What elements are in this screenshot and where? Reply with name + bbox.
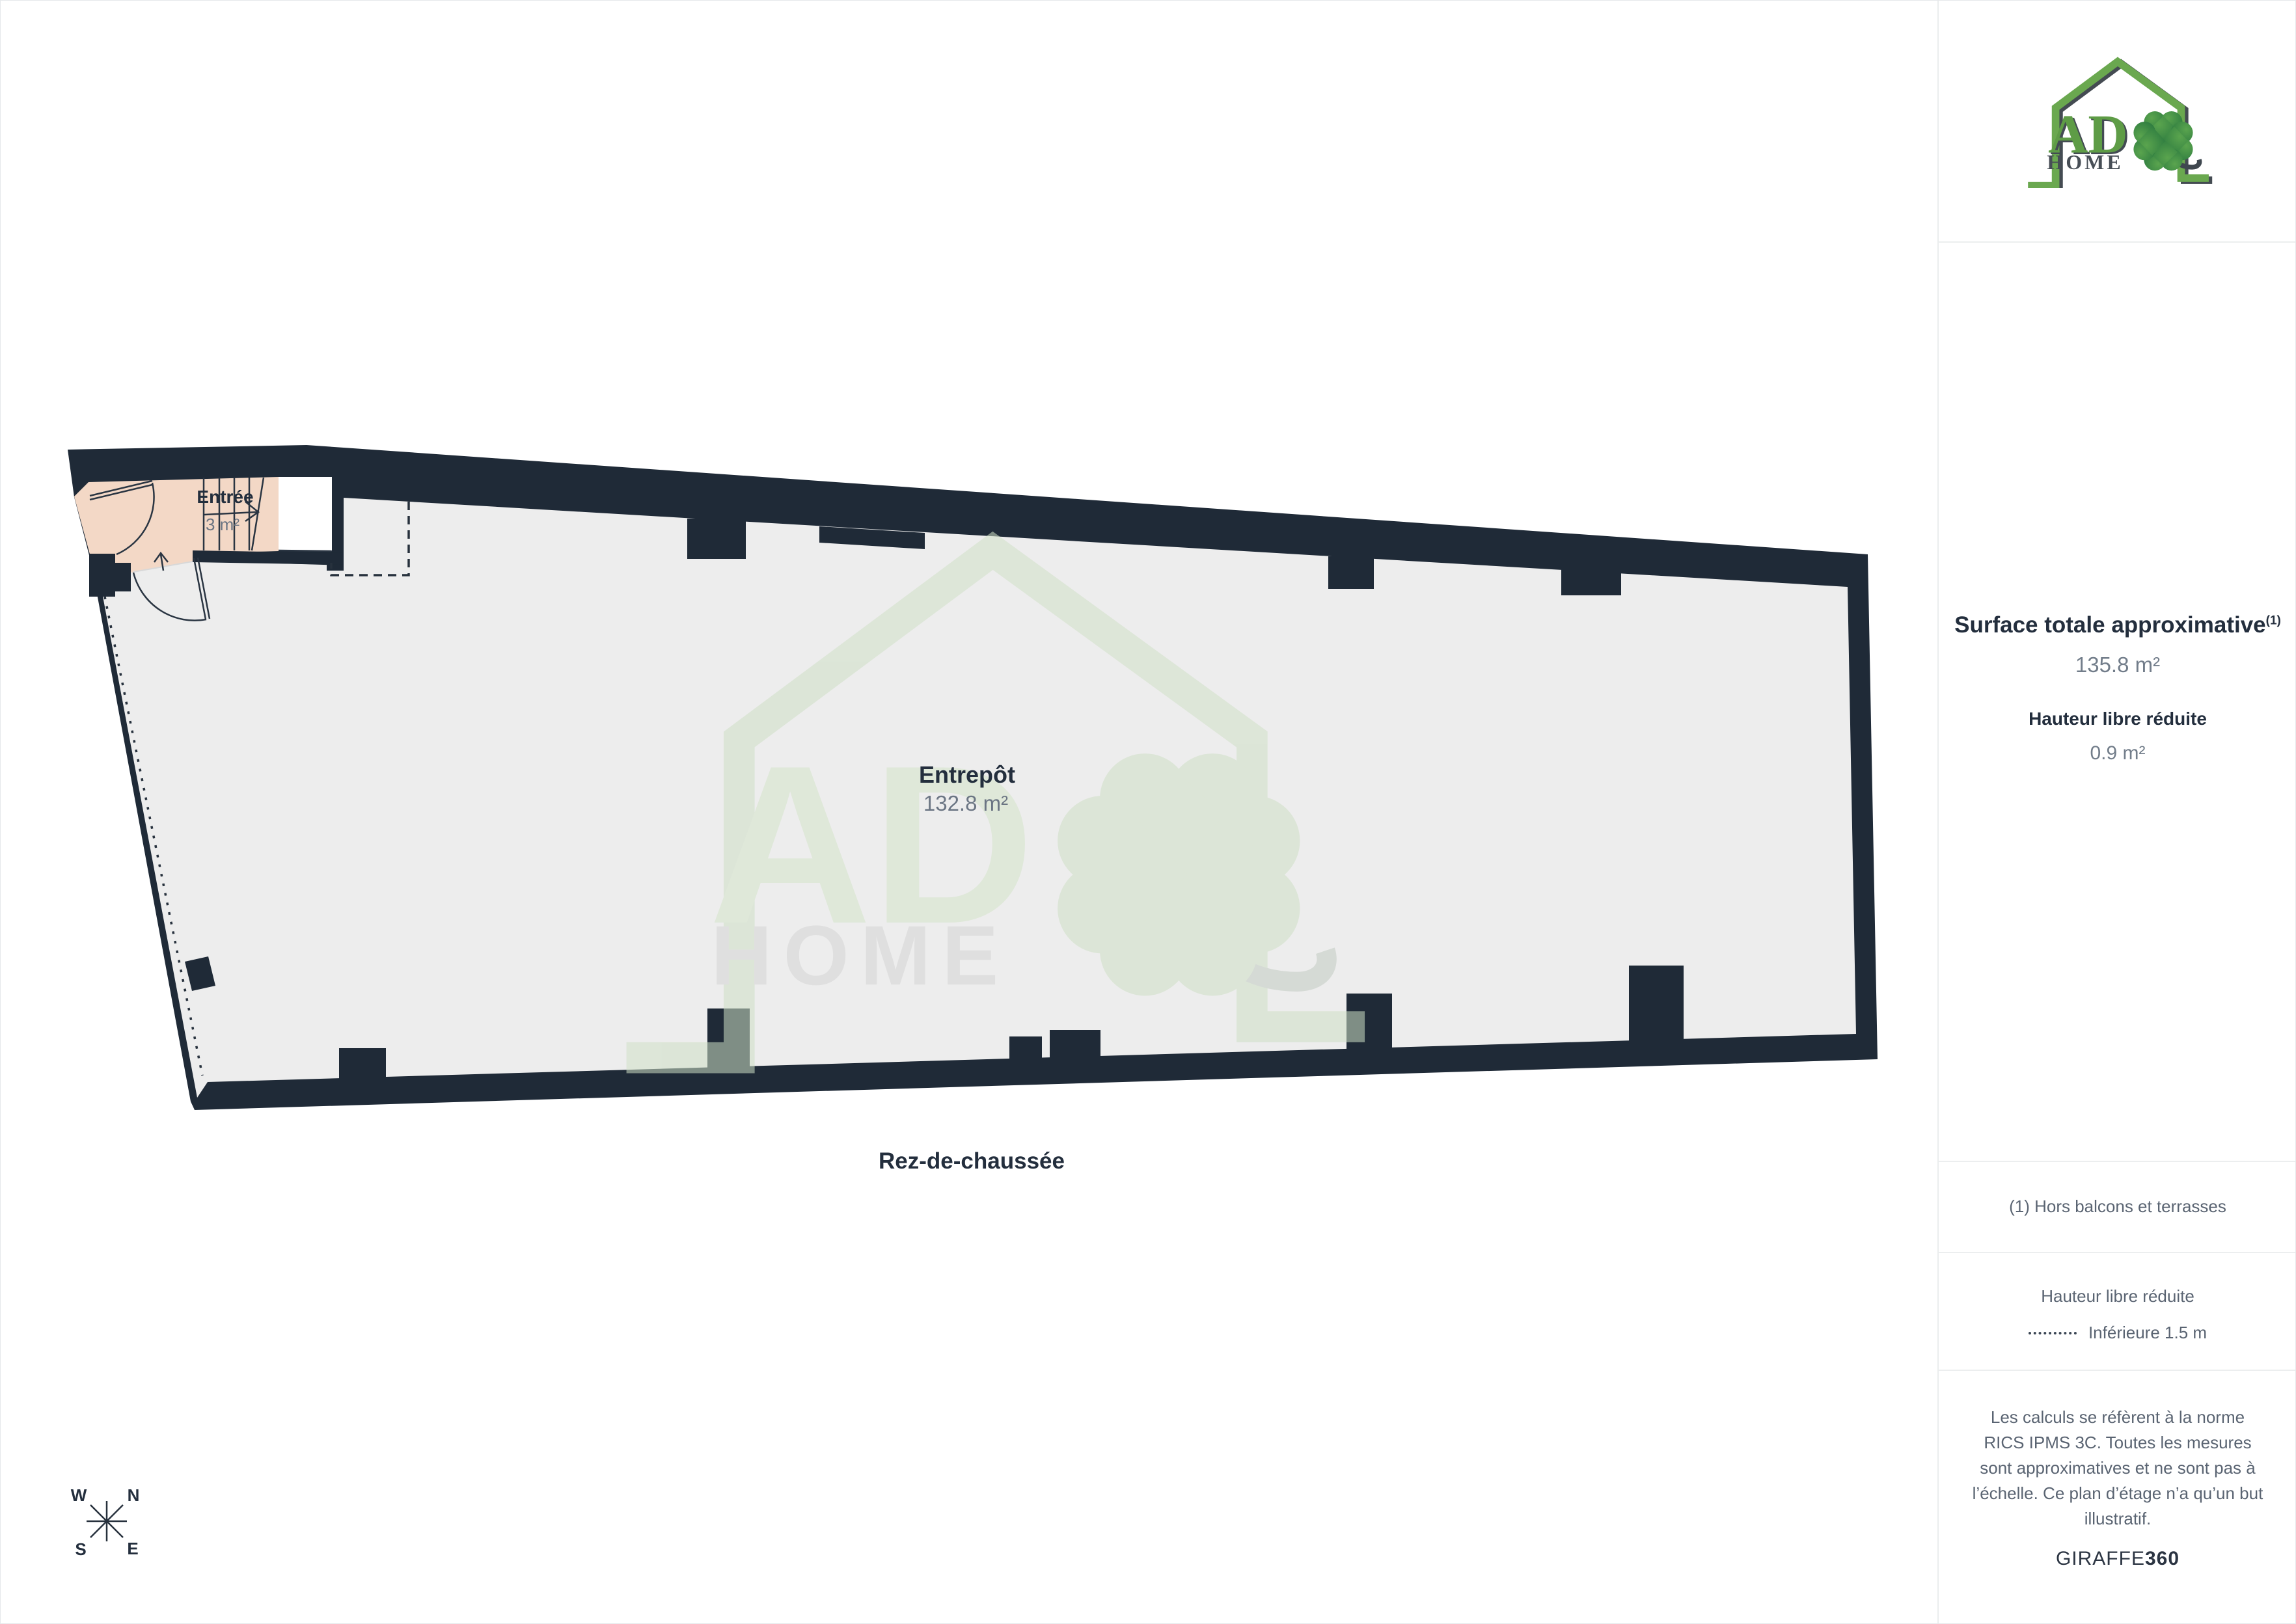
floorplan-page: AD HOME Entrée 3 m² Entrepôt 132.8 m² Re… xyxy=(0,0,2296,1624)
info-sidebar: AD AD HOME xyxy=(1937,1,2296,1624)
logo-clover-icon xyxy=(2133,111,2199,170)
room-label-entree: Entrée xyxy=(197,487,253,507)
brand-logo: AD AD HOME xyxy=(2014,57,2221,191)
reduced-height-title: Hauteur libre réduite xyxy=(1939,709,2296,729)
legend-title: Hauteur libre réduite xyxy=(1939,1286,2296,1306)
surface-total-title-text: Surface totale approximative xyxy=(1954,612,2266,638)
compass-star xyxy=(87,1501,127,1541)
room-label-entrepot: Entrepôt xyxy=(919,761,1015,788)
separator xyxy=(1939,1252,2296,1253)
compass-s: S xyxy=(75,1539,86,1559)
giraffe-brand-regular: GIRAFFE xyxy=(2056,1548,2145,1569)
room-area-entree: 3 m² xyxy=(206,515,239,534)
watermark-home: HOME xyxy=(711,908,1010,1003)
giraffe360-brand: GIRAFFE360 xyxy=(1939,1548,2296,1570)
reduced-height-dash-sample xyxy=(2029,1332,2077,1334)
floorplan-drawing: AD HOME Entrée 3 m² Entrepôt 132.8 m² Re… xyxy=(1,1,1939,1624)
compass-w: W xyxy=(71,1485,87,1505)
separator xyxy=(1939,1161,2296,1162)
compass-e: E xyxy=(127,1539,138,1558)
surface-total-value: 135.8 m² xyxy=(1939,653,2296,677)
giraffe-brand-bold: 360 xyxy=(2145,1548,2180,1569)
legend-item-label: Inférieure 1.5 m xyxy=(2088,1323,2207,1343)
separator xyxy=(1939,1370,2296,1371)
compass-n: N xyxy=(128,1485,140,1505)
alcove xyxy=(279,477,332,551)
floor-label: Rez-de-chaussée xyxy=(879,1148,1065,1174)
surface-total-title: Surface totale approximative(1) xyxy=(1939,612,2296,638)
reduced-height-value: 0.9 m² xyxy=(1939,742,2296,765)
room-area-entrepot: 132.8 m² xyxy=(923,791,1008,815)
legend-row: Inférieure 1.5 m xyxy=(1939,1323,2296,1343)
disclaimer-text: Les calculs se réfèrent à la norme RICS … xyxy=(1970,1405,2265,1532)
separator xyxy=(1939,241,2296,243)
alcove-bottom-line xyxy=(279,550,332,551)
compass: W N S E xyxy=(71,1485,140,1559)
surface-note-ref: (1) xyxy=(2266,614,2281,627)
logo-home-text: HOME xyxy=(2047,151,2124,174)
balcony-footnote: (1) Hors balcons et terrasses xyxy=(1939,1197,2296,1217)
